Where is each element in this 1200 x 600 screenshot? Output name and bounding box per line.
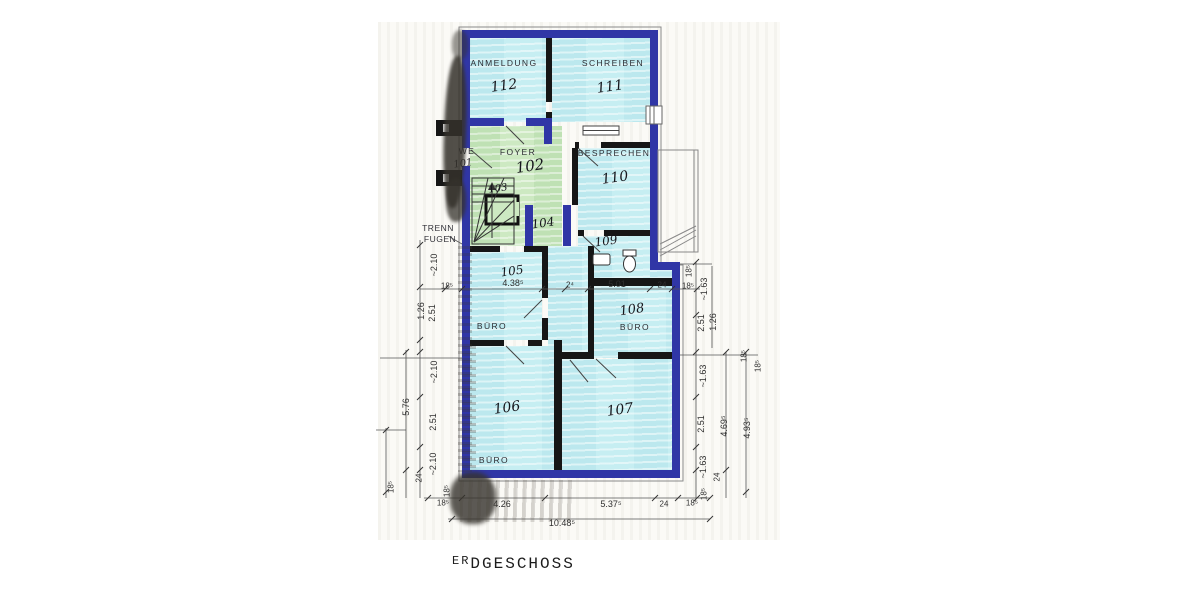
scan-artifact	[462, 346, 476, 470]
room-label-buero-108: BÜRO	[620, 322, 650, 332]
dim-mid-4: 24	[658, 281, 667, 290]
room-area-104-corridor	[548, 246, 588, 358]
room-area-110	[578, 148, 650, 230]
room-label-foyer: FOYER	[500, 147, 536, 157]
dim-bottom-2: 5.37⁵	[600, 499, 621, 509]
dim-left-3: ~2.10	[429, 361, 439, 384]
dim-left-4: 2.51	[428, 413, 438, 431]
drawing-title-prefix: ER	[452, 554, 470, 568]
dim-bottom-3: 24	[660, 500, 669, 509]
trennfugen-label-line2: FUGEN	[424, 234, 456, 244]
dim-mid-2: 2⁴	[566, 281, 574, 290]
dim-left-5: ~2.10	[428, 453, 438, 476]
room-label-schreiben: SCHREIBEN	[582, 58, 644, 68]
dim-mid-0: 18⁵	[441, 282, 453, 291]
dim-right-8: 24	[713, 473, 722, 482]
dim-right-1: ~1.63	[699, 278, 709, 301]
scan-artifact	[446, 178, 466, 222]
dim-bottom-0: 18⁵	[437, 499, 449, 508]
room-label-buero-105: BÜRO	[477, 321, 507, 331]
dim-right-6: 2.51	[696, 415, 706, 433]
room-area-step	[650, 270, 672, 278]
floorplan-scan: ANMELDUNG SCHREIBEN WE FOYER BESPRECHEN …	[0, 0, 1200, 600]
drawing-title-rest: DGESCHOSS	[470, 555, 574, 573]
dim-right-4: 18⁵	[740, 350, 749, 362]
dim-right-0: 18⁵	[685, 265, 694, 277]
dim-right-3: 1.26	[708, 313, 718, 331]
dim-right-5: ~1.63	[698, 365, 708, 388]
dim-left-6: 5.76	[401, 398, 411, 416]
dim-left-0: ~2.10	[429, 254, 439, 277]
dim-left-8: 18⁵	[387, 481, 396, 493]
scan-artifact	[460, 480, 572, 522]
dim-right-2: 2.51	[696, 314, 706, 332]
room-label-anmeldung: ANMELDUNG	[471, 58, 538, 68]
dim-left-7: 24	[415, 474, 424, 483]
dim-right-10: 4.93⁵	[742, 417, 752, 438]
drawing-title: ERDGESCHOSS	[452, 554, 575, 573]
dim-bottom-4: 18⁵	[686, 499, 698, 508]
room-label-besprechen: BESPRECHEN	[578, 148, 651, 158]
dim-right-12: 18⁵	[700, 488, 709, 500]
dim-mid-1: 4.38⁵	[502, 278, 523, 288]
scan-artifact	[452, 30, 468, 60]
dim-left-1: 2.51	[427, 304, 437, 322]
room-label-buero-106: BÜRO	[479, 455, 509, 465]
dim-mid-3: 5.01	[608, 279, 626, 289]
dim-left-2: 1.26	[416, 302, 426, 320]
trennfugen-label-line1: TRENN	[422, 223, 454, 233]
dim-right-9: 4.69⁵	[719, 415, 729, 436]
dim-mid-5: 18⁵	[682, 282, 694, 291]
dim-right-7: ~1.63	[698, 456, 708, 479]
dim-right-11: 18⁵	[754, 360, 763, 372]
